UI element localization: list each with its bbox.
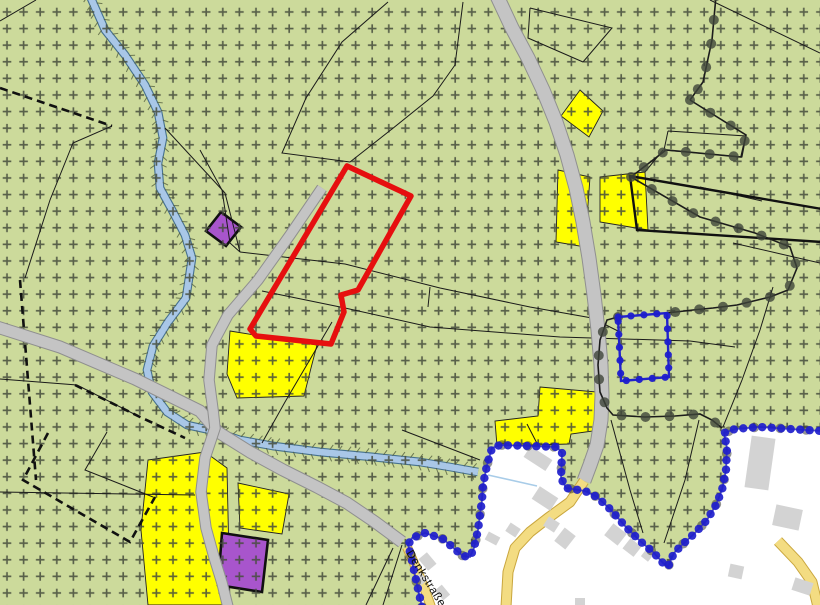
boundary-dot — [688, 208, 698, 218]
boundary-dot — [405, 538, 413, 546]
boundary-dot — [749, 423, 757, 431]
boundary-dot — [688, 410, 698, 420]
boundary-dot — [617, 411, 627, 421]
boundary-dot — [513, 441, 521, 449]
boundary-dot — [722, 456, 730, 464]
boundary-dot — [685, 95, 695, 105]
boundary-dot — [779, 239, 789, 249]
map-viewport[interactable]: Denkstraße — [0, 0, 820, 605]
boundary-dot — [421, 529, 429, 537]
boundary-dot — [777, 424, 785, 432]
boundary-dot — [477, 502, 485, 510]
boundary-dot — [639, 162, 649, 172]
boundary-dot — [756, 231, 766, 241]
boundary-dot — [626, 172, 636, 182]
boundary-dot — [681, 147, 691, 157]
boundary-dot — [723, 446, 731, 454]
boundary-dot — [591, 492, 599, 500]
boundary-dot — [598, 327, 608, 337]
boundary-dot — [484, 455, 492, 463]
boundary-dot — [670, 307, 680, 317]
boundary-dot — [711, 502, 719, 510]
boundary-dot — [638, 538, 646, 546]
boundary-dot — [718, 484, 726, 492]
boundary-dot — [653, 310, 660, 317]
boundary-dot — [768, 424, 776, 432]
boundary-dot — [476, 512, 484, 520]
boundary-dot — [722, 465, 730, 473]
boundary-dot — [665, 561, 673, 569]
boundary-dot — [557, 468, 565, 476]
boundary-dot — [701, 518, 709, 526]
boundary-dot — [598, 498, 606, 506]
boundary-dot — [665, 351, 672, 358]
boundary-dot — [765, 292, 775, 302]
boundary-dot — [594, 374, 604, 384]
boundary-dot — [706, 510, 714, 518]
boundary-dot — [615, 331, 622, 338]
boundary-dot — [551, 443, 559, 451]
boundary-dot — [618, 518, 626, 526]
boundary-dot — [718, 302, 728, 312]
boundary-dot — [645, 545, 653, 553]
boundary-dot — [558, 477, 566, 485]
boundary-dot — [705, 108, 715, 118]
boundary-dot — [474, 521, 482, 529]
boundary-dot — [482, 465, 490, 473]
boundary-dot — [453, 547, 461, 555]
boundary-dot — [494, 441, 502, 449]
boundary-dot — [412, 532, 420, 540]
boundary-dot — [641, 412, 651, 422]
boundary-dot — [636, 376, 643, 383]
boundary-dot — [786, 425, 794, 433]
boundary-dot — [487, 446, 495, 454]
boundary-dot — [758, 423, 766, 431]
boundary-dot — [710, 417, 720, 427]
boundary-dot — [600, 397, 610, 407]
boundary-dot — [573, 486, 581, 494]
boundary-dot — [627, 312, 634, 319]
boundary-dot — [504, 441, 512, 449]
boundary-dot — [616, 357, 623, 364]
boundary-dot — [729, 151, 739, 161]
boundary-dot — [414, 584, 422, 592]
boundary-dot — [664, 411, 674, 421]
boundary-dot — [480, 474, 488, 482]
boundary-dot — [701, 62, 711, 72]
boundary-dot — [694, 304, 704, 314]
boundary-dot — [664, 325, 671, 332]
boundary-dot — [558, 449, 566, 457]
boundary-dot — [742, 298, 752, 308]
boundary-dot — [734, 223, 744, 233]
boundary-dot — [715, 493, 723, 501]
boundary-dot — [582, 488, 590, 496]
boundary-dot — [790, 258, 800, 268]
boundary-dot — [649, 375, 656, 382]
boundary-dot — [652, 551, 660, 559]
boundary-dot — [730, 425, 738, 433]
boundary-dot — [681, 538, 689, 546]
boundary-dot — [523, 442, 531, 450]
boundary-dot — [478, 493, 486, 501]
boundary-dot — [740, 136, 750, 146]
boundary-dot — [668, 552, 676, 560]
boundary-dot — [473, 530, 481, 538]
boundary-dot — [416, 594, 424, 602]
boundary-dot — [605, 504, 613, 512]
boundary-dot — [617, 370, 624, 377]
boundary-dot — [688, 531, 696, 539]
boundary-dot — [720, 475, 728, 483]
boundary-dot — [624, 525, 632, 533]
boundary-dot — [664, 338, 671, 345]
boundary-dot — [542, 442, 550, 450]
boundary-dot — [709, 15, 719, 25]
boundary-dot — [631, 532, 639, 540]
boundary-dot — [623, 377, 630, 384]
boundary-dot — [674, 544, 682, 552]
boundary-dot — [439, 535, 447, 543]
boundary-dot — [611, 511, 619, 519]
boundary-dot — [430, 532, 438, 540]
boundary-dot — [711, 217, 721, 227]
boundary-dot — [479, 483, 487, 491]
boundary-dot — [532, 442, 540, 450]
boundary-dot — [706, 39, 716, 49]
boundary-dot — [564, 484, 572, 492]
boundary-dot — [616, 344, 623, 351]
boundary-dot — [785, 281, 795, 291]
boundary-dot — [662, 374, 669, 381]
boundary-dot — [640, 311, 647, 318]
boundary-dot — [721, 428, 729, 436]
boundary-dot — [665, 364, 672, 371]
boundary-dot — [796, 425, 804, 433]
boundary-dot — [668, 196, 678, 206]
boundary-dot — [721, 437, 729, 445]
boundary-dot — [594, 350, 604, 360]
boundary-dot — [705, 149, 715, 159]
boundary-dot — [615, 318, 622, 325]
boundary-dot — [693, 84, 703, 94]
boundary-dot — [726, 120, 736, 130]
boundary-dot — [471, 540, 479, 548]
boundary-dot — [805, 426, 813, 434]
boundary-dot — [647, 184, 657, 194]
map-canvas[interactable]: Denkstraße — [0, 0, 820, 605]
boundary-dot — [446, 541, 454, 549]
boundary-dot — [468, 549, 476, 557]
building — [575, 598, 585, 605]
boundary-dot — [557, 458, 565, 466]
boundary-dot — [658, 147, 668, 157]
boundary-dot — [695, 525, 703, 533]
boundary-dot — [739, 424, 747, 432]
boundary-dot — [663, 312, 670, 319]
